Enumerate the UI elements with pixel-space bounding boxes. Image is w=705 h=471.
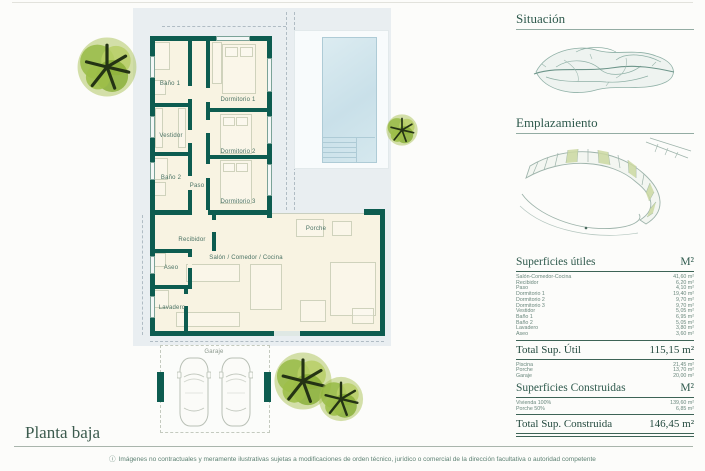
porch-edge-line xyxy=(272,213,366,214)
furniture-dining-table xyxy=(250,264,282,310)
furniture-pillow xyxy=(236,163,248,172)
table-rows-extra: Piscina21,45 m² Porche13,70 m² Garaje20,… xyxy=(516,360,694,382)
table-title: Superficies útiles xyxy=(516,256,596,268)
window xyxy=(150,56,155,78)
pool-steps xyxy=(322,137,375,162)
furniture-coffee-table xyxy=(352,308,374,324)
setback-dash-line xyxy=(162,26,286,27)
table-header: Superficies Construidas M² xyxy=(516,382,694,398)
door-opening xyxy=(188,257,192,268)
room-label-porche: Porche xyxy=(306,226,326,232)
window xyxy=(150,116,155,138)
car-icon xyxy=(219,356,253,428)
situacion-map xyxy=(516,32,694,110)
wall xyxy=(150,210,272,215)
emplazamiento-map xyxy=(516,136,694,244)
window xyxy=(267,116,272,144)
furniture-pillow xyxy=(223,163,235,172)
room-label-dormitorio-2: Dormitorio 2 xyxy=(220,149,255,155)
emplazamiento-title: Emplazamiento xyxy=(516,116,694,130)
table-row: Aseo3,60 m² xyxy=(516,332,694,338)
furniture-pillow xyxy=(225,47,238,57)
furniture-closet xyxy=(178,108,186,148)
row-label: Porche 50% xyxy=(516,407,545,413)
window xyxy=(267,164,272,196)
table-rows: Salón-Comedor-Cocina41,60 m² Recibidor6,… xyxy=(516,272,694,340)
total-construida-row: Total Sup. Construida 146,45 m² xyxy=(516,414,694,434)
furniture-wardrobe xyxy=(212,42,222,84)
wall xyxy=(150,103,192,107)
window xyxy=(150,162,155,180)
page-title: Planta baja xyxy=(25,423,100,443)
car-icon xyxy=(177,356,211,428)
wall xyxy=(206,108,272,112)
superficies-construidas-table: Superficies Construidas M² Vivienda 100%… xyxy=(516,382,694,437)
brochure-page: Baño 1 Dormitorio 1 Vestidor Dormitorio … xyxy=(0,0,705,471)
table-row: Porche 50%6,85 m² xyxy=(516,407,694,413)
section-rule xyxy=(516,133,694,134)
setback-dash-line xyxy=(150,341,384,342)
garage-wall-stub xyxy=(264,372,271,402)
room-label-aseo: Aseo xyxy=(164,265,178,271)
wall xyxy=(212,213,216,251)
row-value: 6,85 m² xyxy=(676,407,694,413)
wall xyxy=(206,155,272,159)
setback-dash-line xyxy=(142,215,143,335)
table-rows: Vivienda 100%139,60 m² Porche 50%6,85 m² xyxy=(516,398,694,414)
wall xyxy=(150,36,155,336)
table-unit: M² xyxy=(680,382,694,394)
room-label-paso: Paso xyxy=(190,183,204,189)
double-rule xyxy=(516,436,694,437)
room-label-salon-comedor-cocina: Salón / Comedor / Cocina xyxy=(209,255,283,261)
wall xyxy=(364,209,385,215)
situacion-title: Situación xyxy=(516,12,694,26)
furniture-closet xyxy=(155,108,163,148)
window xyxy=(150,296,155,318)
wall xyxy=(150,249,192,253)
door-opening xyxy=(188,130,192,143)
total-value: 115,15 m² xyxy=(650,344,694,356)
sliding-door-opening xyxy=(274,331,300,336)
furniture-shower xyxy=(154,42,170,70)
window xyxy=(216,36,250,41)
total-value: 146,45 m² xyxy=(649,418,694,430)
footer-text: Imágenes no contractuales y meramente il… xyxy=(119,456,596,463)
table-header: Superficies útiles M² xyxy=(516,256,694,272)
garage-wall-stub xyxy=(157,372,164,402)
furniture-pillow xyxy=(223,117,235,126)
tree-icon xyxy=(317,375,365,423)
section-rule xyxy=(516,29,694,30)
row-value: 3,60 m² xyxy=(676,332,694,338)
door-opening xyxy=(212,220,216,232)
window xyxy=(150,256,155,274)
table-title: Superficies Construidas xyxy=(516,382,626,394)
room-label-dormitorio-1: Dormitorio 1 xyxy=(220,97,255,103)
row-label: Garaje xyxy=(516,374,532,380)
footer-note: ⓘImágenes no contractuales y meramente i… xyxy=(0,453,705,463)
setback-dash-line xyxy=(286,12,287,210)
room-label-recibidor: Recibidor xyxy=(178,237,205,243)
info-icon: ⓘ xyxy=(109,453,116,463)
total-label: Total Sup. Útil xyxy=(516,344,581,356)
total-label: Total Sup. Construida xyxy=(516,418,612,430)
info-panel: Situación Emplazamiento xyxy=(516,12,694,437)
room-label-lavadero: Lavadero xyxy=(159,305,186,311)
tree-icon xyxy=(75,35,139,99)
wall xyxy=(150,152,192,156)
title-rule xyxy=(14,446,693,447)
window xyxy=(267,58,272,92)
door-opening xyxy=(206,164,210,178)
furniture-porch-table xyxy=(332,221,352,236)
page-top-rule xyxy=(12,2,693,3)
door-opening xyxy=(206,120,210,133)
door-opening xyxy=(188,86,192,99)
wall xyxy=(150,36,272,41)
furniture-pillow xyxy=(240,47,253,57)
table-unit: M² xyxy=(680,256,694,268)
total-util-row: Total Sup. Útil 115,15 m² xyxy=(516,340,694,360)
furniture-toilet xyxy=(154,182,166,196)
room-label-vestidor: Vestidor xyxy=(159,133,182,139)
furniture-armchair xyxy=(300,300,326,322)
furniture-kitchen-island xyxy=(186,264,240,282)
superficies-utiles-table: Superficies útiles M² Salón-Comedor-Coci… xyxy=(516,256,694,382)
room-label-bano-2: Baño 2 xyxy=(161,175,181,181)
room-label-dormitorio-3: Dormitorio 3 xyxy=(220,199,255,205)
room-label-bano-1: Baño 1 xyxy=(160,81,180,87)
tree-icon xyxy=(385,113,419,147)
row-label: Aseo xyxy=(516,332,528,338)
wall xyxy=(380,213,385,336)
furniture-pillow xyxy=(236,117,248,126)
table-row: Garaje20,00 m² xyxy=(516,374,694,380)
door-opening xyxy=(206,88,210,102)
room-label-garaje: Garaje xyxy=(204,349,223,355)
wall xyxy=(188,249,192,289)
door-opening xyxy=(192,210,208,215)
row-value: 20,00 m² xyxy=(673,374,694,380)
